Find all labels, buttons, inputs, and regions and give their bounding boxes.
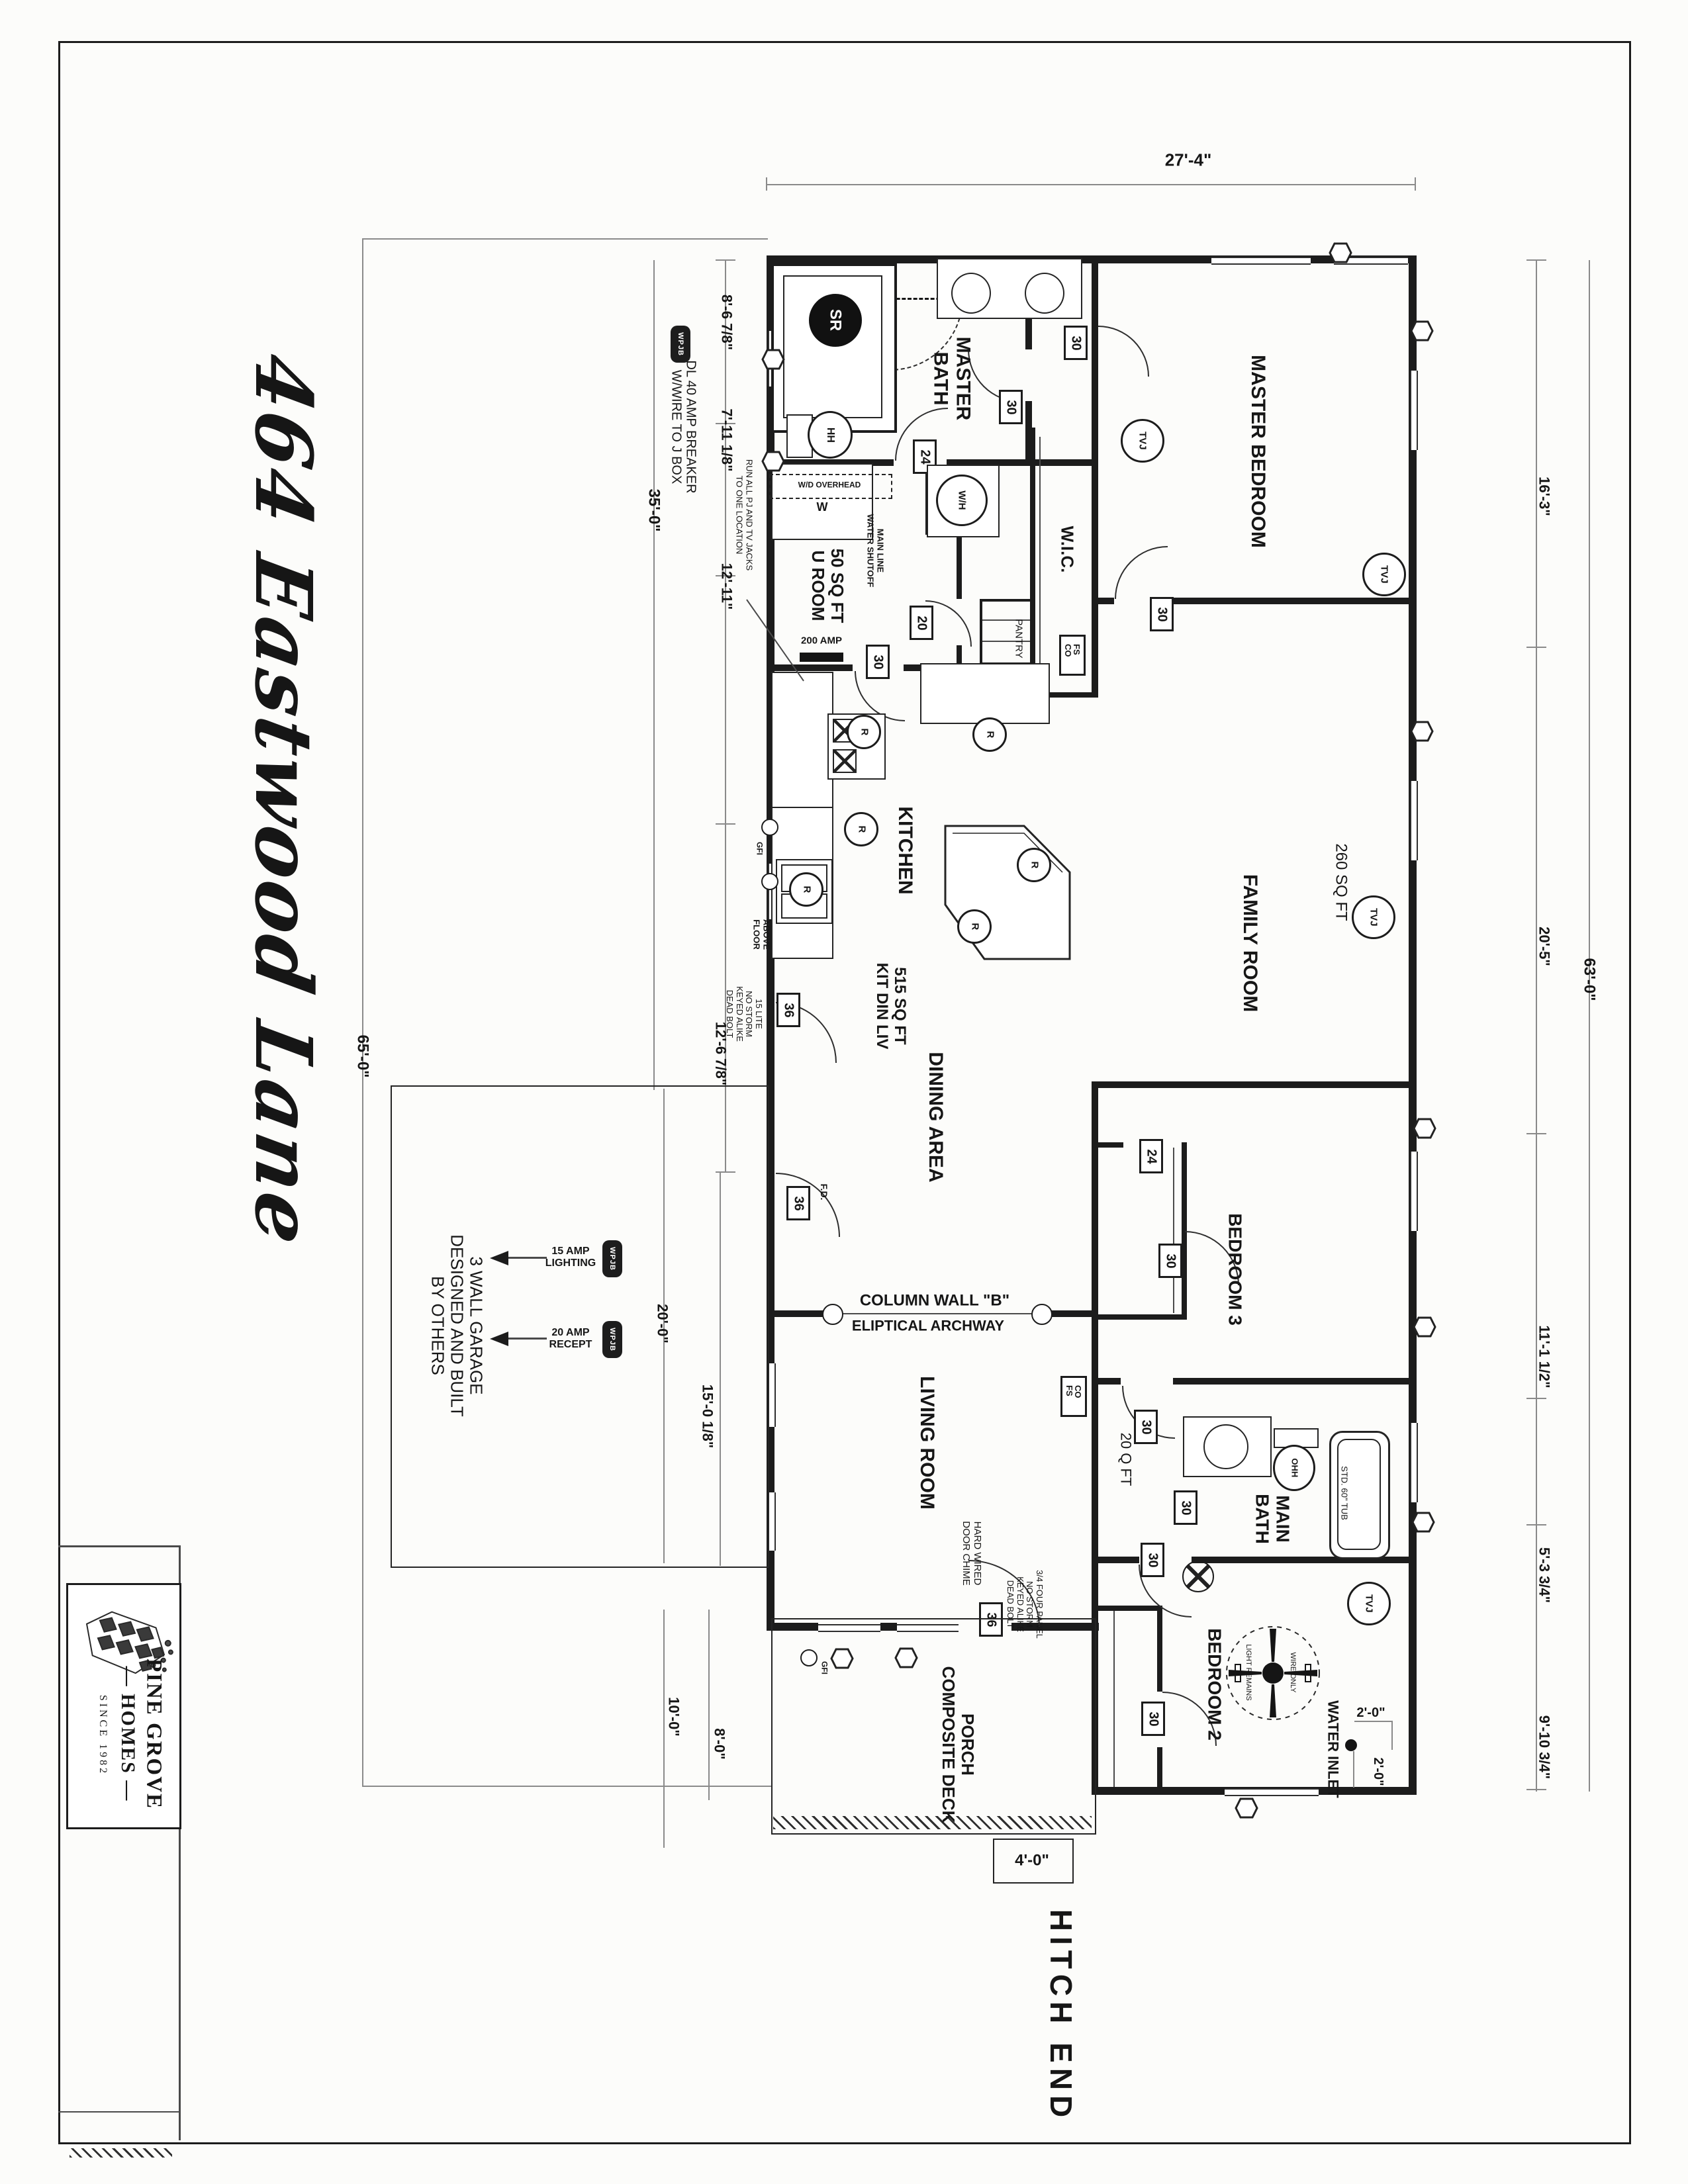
wall-closet2-right [1157, 1747, 1162, 1790]
dim-label-35: 35'-0" [645, 488, 663, 531]
tv-jack-symbol: TVJ [1121, 419, 1164, 463]
room-label-living: LIVING ROOM [915, 1376, 938, 1510]
garage-15amp-note: 15 AMP LIGHTING [545, 1246, 596, 1269]
tv-jack-symbol: TVJ [1362, 553, 1406, 596]
room-label-wic: W.I.C. [1057, 526, 1076, 573]
sink [951, 273, 991, 314]
door-size-30: 30 [1134, 1410, 1158, 1444]
tv-jack-symbol: TVJ [1352, 895, 1395, 939]
wall-mainbath-bottom [1096, 1557, 1139, 1563]
dim-tick [1526, 259, 1546, 261]
window [1410, 371, 1418, 450]
wpjb-badge: WPJB [602, 1321, 622, 1358]
wall-masterbed-bottom [1096, 598, 1114, 604]
electrical-panel [800, 653, 843, 662]
door-size-30: 30 [999, 390, 1023, 424]
dim-tick [1526, 1133, 1546, 1134]
arrow-icon [490, 1251, 508, 1265]
logo-brand-mid: — HOMES — [117, 1666, 139, 1802]
wall-right [1409, 255, 1417, 1795]
door-size-30: 30 [866, 645, 890, 679]
wall-closet3-bottom [1096, 1314, 1187, 1320]
wall-light-icon [1411, 1512, 1435, 1533]
room-label-porch: PORCH COMPOSITE DECK [939, 1666, 977, 1823]
handwritten-address: 464 Eastwood Lane [240, 348, 327, 1254]
dim-tick [716, 259, 735, 261]
door-size-30: 30 [1150, 597, 1174, 631]
gfi-label: GFI [755, 842, 763, 855]
closet2-shelf-line [1113, 1611, 1115, 1787]
room-label-master-bath: MASTER BATH [929, 337, 974, 421]
logo-brand-since: S I N C E 1 9 8 2 [97, 1695, 109, 1773]
door-size-20: 20 [910, 606, 933, 640]
water-inlet-symbol [1345, 1739, 1357, 1751]
room-label-u-room: 50 SQ FT U ROOM [808, 549, 847, 623]
window [1225, 1788, 1319, 1796]
dim-ext-top-65 [362, 238, 768, 240]
recessed-light-symbol: R [957, 909, 992, 944]
dim-ext-bottom-65 [362, 1786, 773, 1787]
wall-bedroom3-bottom [1173, 1378, 1415, 1385]
dim-label-right-5: 9'-10 3/4" [1536, 1715, 1552, 1779]
ceiling-fan-icon [1223, 1623, 1323, 1723]
kitchen-counter [771, 672, 833, 808]
ceiling-light-symbol [1182, 1561, 1214, 1592]
arrow-icon [490, 1332, 508, 1346]
wall-pantry-top [980, 599, 1031, 602]
toilet-symbol: HH [808, 411, 853, 459]
wall-closet3-top [1096, 1142, 1123, 1148]
fd-label: F.D. [818, 1184, 829, 1201]
wall-light-icon [761, 349, 785, 370]
chime-note: HARD WIRED DOOR CHIME [960, 1521, 982, 1586]
washer-label: W [817, 500, 828, 514]
window [1410, 1152, 1418, 1231]
dim-label-step: 4'-0" [1015, 1852, 1049, 1870]
wall-light-icon [761, 451, 785, 472]
porch-light-icon [1235, 1797, 1258, 1819]
hitch-end-label: HITCH END [1043, 1909, 1078, 2122]
door-size-36: 36 [786, 1186, 810, 1220]
window [1410, 781, 1418, 860]
wic-shelf-line [1039, 437, 1041, 688]
dim-label-left-3: 12'-11" [718, 563, 735, 610]
room-label-pantry: PANTRY [1013, 619, 1024, 658]
column [1031, 1304, 1053, 1325]
gfi-outlet-symbol [800, 1649, 818, 1666]
deck-edge-hatch [773, 1816, 1092, 1829]
inlet-dim-line [1354, 1721, 1393, 1722]
garage-20amp-note: 20 AMP RECEPT [549, 1327, 592, 1351]
wall-bedroom3-top [1096, 1081, 1417, 1088]
sink [1203, 1424, 1248, 1469]
room-label-main-bath: MAIN BATH [1252, 1494, 1293, 1544]
kitchen-island [943, 824, 1072, 961]
door-size-30: 30 [1141, 1543, 1164, 1577]
gfi-outlet-symbol [761, 873, 778, 890]
dim-label-left-1: 8'-6 7/8" [718, 295, 735, 350]
room-label-dining: DINING AREA [924, 1052, 947, 1182]
wall-bedroom3-bottom [1096, 1378, 1121, 1385]
run-jacks-note: RUN ALL PJ AND TV JACKS TO ONE LOCATION [734, 459, 753, 570]
dim-label-inlet-a: 2'-0" [1356, 1706, 1385, 1720]
dim-line-porch-10 [663, 1610, 665, 1848]
scanned-floor-plan-sheet: PINE GROVE — HOMES — S I N C E 1 9 8 2 4… [0, 0, 1688, 2184]
wall-light-icon [1410, 320, 1434, 341]
arrow-line [508, 1257, 547, 1259]
fan-note-wire: WIRE ONLY [1289, 1653, 1297, 1693]
shower-rose-symbol: SR [809, 294, 862, 347]
recessed-light-symbol: R [847, 715, 881, 749]
room-label-family: FAMILY ROOM [1239, 874, 1261, 1012]
wd-overhead-note: W/D OVERHEAD [798, 480, 861, 489]
dim-tick [1415, 177, 1416, 191]
dim-tick [1526, 1789, 1546, 1790]
main-bath-sqft-label: 20 Q FT [1117, 1433, 1134, 1486]
dim-label-porch-10: 10'-0" [665, 1697, 682, 1737]
closet3-shelf-line [1173, 1148, 1174, 1313]
room-label-bedroom3: BEDROOM 3 [1225, 1213, 1245, 1326]
dim-tick [766, 177, 767, 191]
porch-light-icon [830, 1648, 854, 1669]
room-label-kitchen: KITCHEN [894, 806, 916, 894]
dim-label-inlet-b: 2'-0" [1371, 1757, 1385, 1786]
dim-tick [716, 823, 735, 825]
wall-column-a [767, 1310, 825, 1317]
dl40-note: DL 40 AMP BREAKER W/WIRE TO J BOX [669, 360, 698, 493]
wall-light-icon [1329, 242, 1352, 263]
smoke-co-detector: FS CO [1059, 635, 1086, 676]
door-size-36: 36 [776, 993, 800, 1027]
above-floor-note: ABOVE FLOOR [751, 919, 771, 950]
water-inlet-label: WATER INLET [1325, 1700, 1341, 1797]
gfi-outlet-symbol [761, 819, 778, 836]
door-size-30: 30 [1064, 326, 1088, 360]
title-block-scribble [70, 2148, 172, 2158]
door-15lite-note: 15 LITE NO STORM KEYED ALIKE DEAD BOLT [725, 986, 763, 1042]
garage-note: 3 WALL GARAGE DESIGNED AND BUILT BY OTHE… [428, 1234, 485, 1416]
window [1211, 257, 1311, 265]
wall-light-icon [1413, 1316, 1436, 1338]
kit-din-liv-sqft-label: 515 SQ FT KIT DIN LIV [872, 963, 908, 1050]
water-heater-symbol: W/H [936, 475, 988, 526]
porch-light-icon [894, 1647, 918, 1668]
wall-marriage-upper [1092, 255, 1098, 698]
dim-label-right-3: 11'-1 1/2" [1536, 1325, 1552, 1388]
dim-line-35 [653, 260, 655, 1090]
arrow-line [508, 1338, 547, 1340]
fridge-cabinet [920, 663, 1050, 724]
fan-note-light: LIGHT REMAINS [1244, 1644, 1252, 1700]
dim-line-porch-8 [708, 1610, 710, 1800]
dim-tick [1526, 1524, 1546, 1525]
room-label-master-bedroom: MASTER BEDROOM [1246, 355, 1269, 548]
wall-closet2-right [1157, 1606, 1162, 1692]
gfi-label: GFI [820, 1661, 828, 1674]
wpjb-badge: WPJB [671, 326, 690, 363]
dim-label-63: 63'-0" [1580, 958, 1598, 1001]
door-front-note: 3/4 FOUR PANEL NO STORM KEYED ALIKE DEAD… [1006, 1570, 1044, 1639]
wall-uroom-bottom [767, 664, 853, 671]
door-size-30: 30 [1174, 1490, 1197, 1525]
tv-jack-symbol: TVJ [1347, 1582, 1391, 1625]
wall-closet3-right [1182, 1142, 1187, 1318]
dim-tick [1526, 1398, 1546, 1399]
recessed-light-symbol: R [789, 872, 823, 907]
co-smoke-detector: CO FS [1060, 1376, 1087, 1417]
column-wall-label: COLUMN WALL "B" [860, 1293, 1009, 1310]
dim-label-right-4: 5'-3 3/4" [1536, 1547, 1552, 1603]
room-label-bedroom2: BEDROOM 2 [1204, 1628, 1225, 1741]
door-size-24: 24 [1139, 1139, 1163, 1173]
toilet-symbol: OHH [1273, 1445, 1315, 1491]
door-size-30: 30 [1141, 1702, 1165, 1736]
dim-label-right-1: 16'-3" [1536, 477, 1552, 516]
burner-icon [833, 749, 857, 773]
dim-tick [1526, 647, 1546, 648]
main-line-note: MAIN LINE WATER SHUTOFF [865, 514, 884, 588]
wall-pantry-left [980, 599, 982, 665]
inlet-dim-line [1353, 1751, 1354, 1788]
family-sqft-label: 260 SQ FT [1332, 843, 1350, 921]
dim-label-top-width: 27'-4" [1165, 150, 1212, 169]
dim-label-porch-8: 8'-0" [711, 1728, 727, 1759]
column [822, 1304, 843, 1325]
recessed-light-symbol: R [972, 717, 1007, 752]
panel-label: 200 AMP [801, 636, 842, 647]
title-block-divider-top [58, 1545, 181, 1547]
wpjb-badge: WPJB [602, 1240, 622, 1277]
archway-header-line [825, 1313, 1050, 1314]
dim-label-right-2: 20'-5" [1536, 927, 1552, 966]
archway-label: ELIPTICAL ARCHWAY [852, 1318, 1004, 1335]
wall-closet2-top [1096, 1606, 1158, 1611]
dim-label-left-2: 7'-11 1/8" [718, 408, 735, 471]
dim-line-top [767, 184, 1416, 185]
window [1410, 1423, 1418, 1502]
dim-line-63 [1589, 260, 1590, 1792]
recessed-light-symbol: R [844, 812, 878, 846]
wall-light-icon [1410, 721, 1434, 742]
recessed-light-symbol: R [1017, 848, 1051, 882]
wall-light-icon [1413, 1118, 1436, 1139]
inlet-dim-line [1391, 1721, 1393, 1750]
title-block-lower-line [58, 2111, 181, 2113]
wall-column-b [1050, 1310, 1098, 1317]
sink [1025, 273, 1064, 314]
wall-masterbed-bottom [1166, 598, 1415, 604]
dim-label-65: 65'-0" [353, 1034, 371, 1077]
logo-brand-top: PINE GROVE [142, 1659, 166, 1809]
tub-note: STD. 60" TUB [1339, 1466, 1349, 1520]
deck-outline [771, 1618, 1096, 1835]
wall-wic-left [1030, 428, 1035, 698]
door-size-30: 30 [1158, 1244, 1182, 1278]
dim-line-65 [362, 238, 363, 1787]
